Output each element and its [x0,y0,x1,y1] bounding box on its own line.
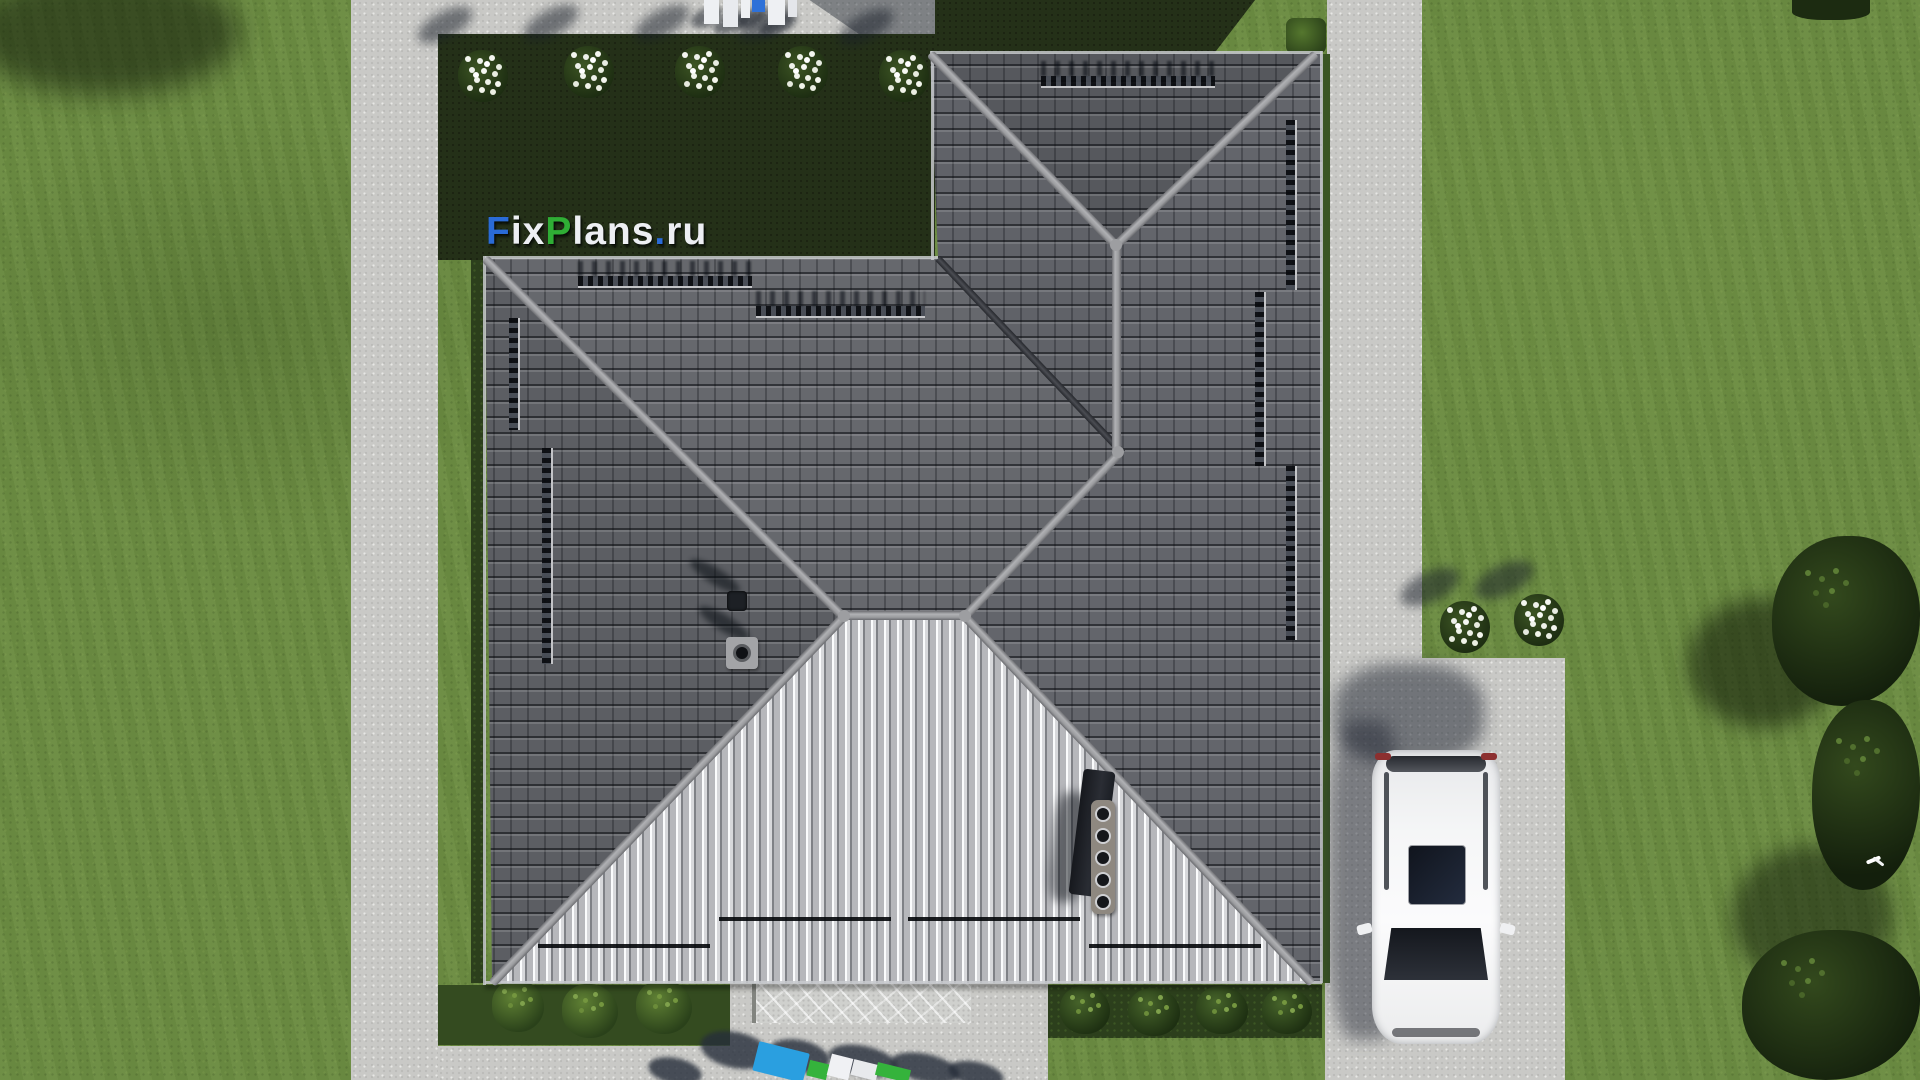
letter-top [741,0,750,18]
shrub [1128,988,1180,1036]
flower-bush [778,46,828,98]
fascia-wing-left [931,51,934,260]
aerial-render-scene: FixPlans.ru [0,0,1920,1080]
ridge-junction [1112,446,1124,458]
roof-vent [727,591,747,611]
hedge-corner [1286,18,1326,54]
snow-guard [1255,292,1266,466]
car-roof-rail [1384,772,1389,890]
shaded-lawn-above-wing [935,0,1265,56]
entrance-porch [752,983,971,1023]
flower-bush [564,46,614,98]
snow-guard [1286,466,1297,640]
vent-stack-pipe [1095,872,1111,888]
snow-guard [756,306,925,318]
ridge-junction [1110,239,1122,251]
main-ridge [839,611,969,620]
vent-stack-pipe [1095,828,1111,844]
letter-top [768,0,785,25]
fascia-left [483,256,486,985]
logo-seg-f: F [486,210,511,253]
car-rear-window [1386,756,1486,772]
car-front-grille [1392,1028,1480,1037]
logo-seg-dot: . [654,210,666,253]
snow-guard-bar [1089,944,1261,948]
snow-guard [509,318,520,430]
snow-guard [542,448,553,664]
snow-guard-bar [908,917,1080,921]
fascia-right [1320,51,1323,983]
logo-seg-p: P [545,210,572,253]
logo-seg-lans: lans [572,210,654,253]
flower-bush [458,50,508,102]
car-taillight [1375,753,1391,760]
snow-guard-bar [538,944,710,948]
vent-stack-pipe [1095,850,1111,866]
car-roof-rail [1483,772,1488,890]
snow-guard [578,276,752,288]
wing-vertical-ridge [1112,243,1121,455]
letter-top-blue [752,0,765,12]
shrub [1060,986,1110,1034]
flower-bush [675,46,725,98]
fascia-top [485,256,938,259]
shrub [562,984,618,1038]
flower-bush [1514,594,1564,646]
fascia-wing-top [930,51,1322,54]
fascia-bottom [485,981,1322,984]
car-taillight [1481,753,1497,760]
logo-seg-ix: ix [511,210,546,253]
right-path [1327,0,1422,660]
letter-top [788,0,797,17]
flower-bush [879,50,929,102]
vent-stack-pipe [1095,894,1111,910]
car-windshield [1384,928,1488,980]
letter-top [704,0,719,24]
car-sunroof [1408,845,1466,905]
snow-guard-bar [719,917,891,921]
flower-bush [1440,601,1490,653]
fixplans-watermark: FixPlans.ru [486,212,707,251]
snow-guard [1041,76,1215,88]
vent-pipe [733,644,751,662]
left-path [351,0,438,1080]
shrub [1262,988,1312,1034]
letter-top [723,0,738,27]
logo-seg-ru: ru [666,210,707,253]
ridge-junction [838,610,850,622]
shrub [1196,986,1248,1034]
ridge-junction [959,610,971,622]
snow-guard [1286,120,1297,290]
tree-top-right [1792,0,1870,20]
vent-stack-pipe [1095,806,1111,822]
